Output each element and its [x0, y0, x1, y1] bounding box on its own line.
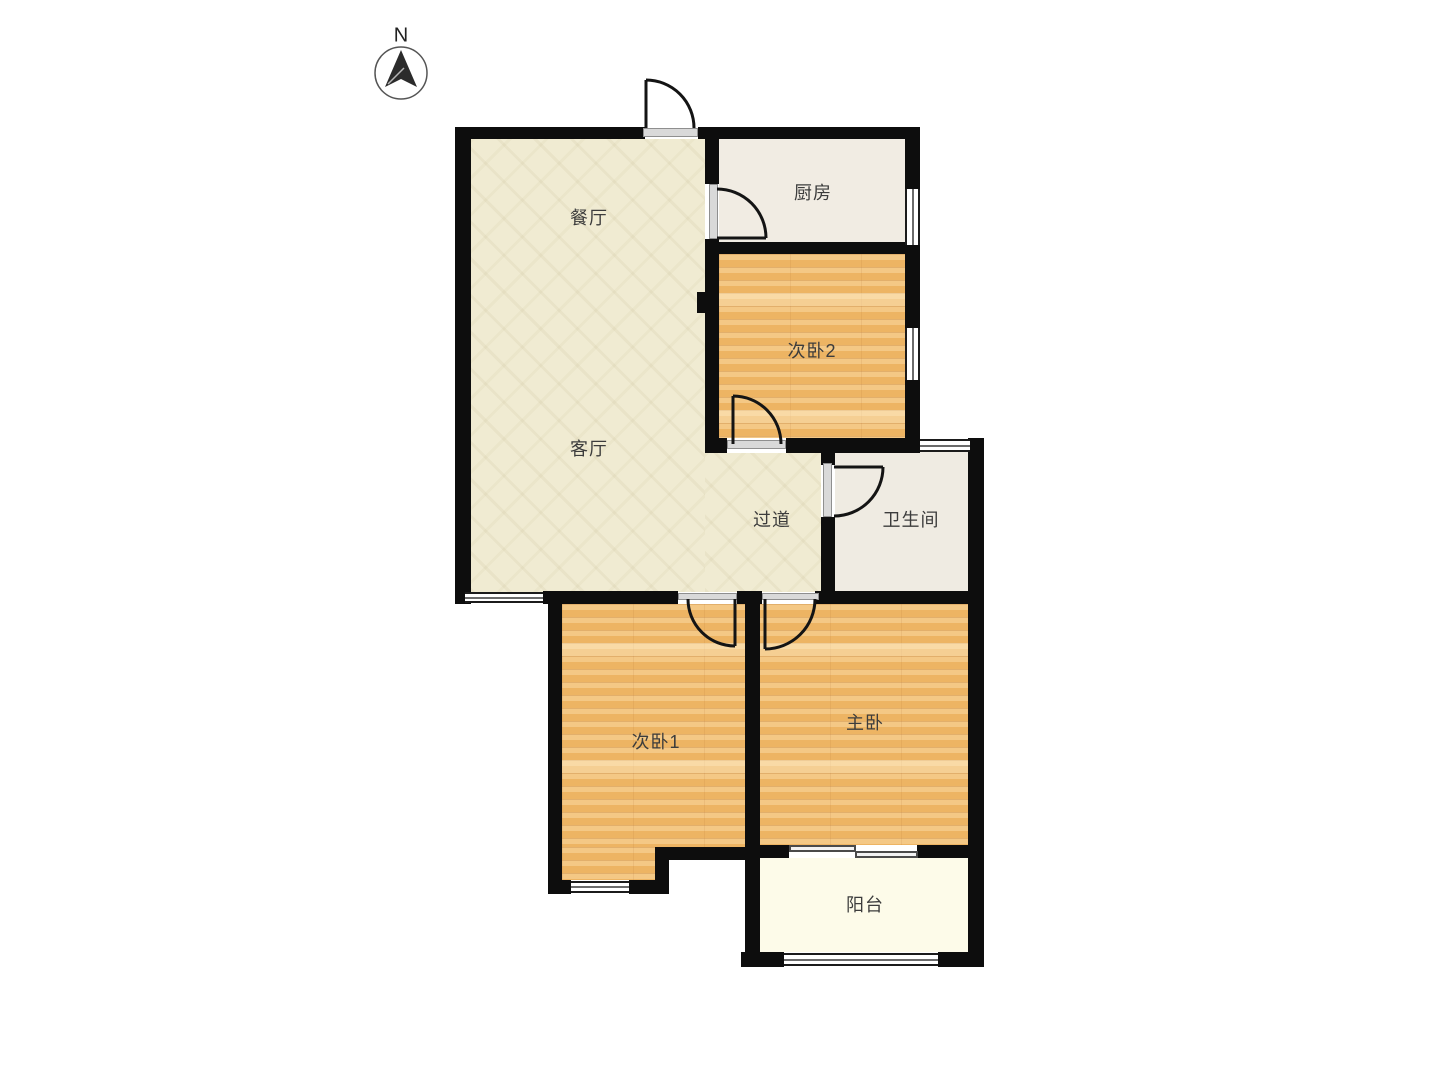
room-label-hallway: 过道	[753, 506, 791, 532]
room-label-master: 主卧	[846, 709, 884, 735]
door-layer	[0, 0, 1440, 1080]
door-bedroom2	[733, 396, 781, 444]
compass-icon	[370, 42, 434, 106]
room-label-bedroom2: 次卧2	[787, 337, 836, 363]
room-label-living: 客厅	[570, 435, 608, 461]
room-label-balcony: 阳台	[846, 891, 884, 917]
room-label-bedroom1: 次卧1	[631, 728, 680, 754]
room-label-kitchen: 厨房	[794, 179, 832, 205]
door-bathroom	[834, 467, 883, 516]
room-label-bathroom: 卫生间	[883, 506, 940, 532]
door-entry	[646, 80, 694, 128]
door-bedroom1	[688, 599, 735, 646]
door-master	[765, 599, 815, 649]
room-label-dining: 餐厅	[570, 204, 608, 230]
door-kitchen	[717, 189, 766, 238]
floor-plan: N 餐厅 厨房 次卧2 客厅 过道 卫生间 次卧1 主卧 阳台	[0, 0, 1440, 1080]
